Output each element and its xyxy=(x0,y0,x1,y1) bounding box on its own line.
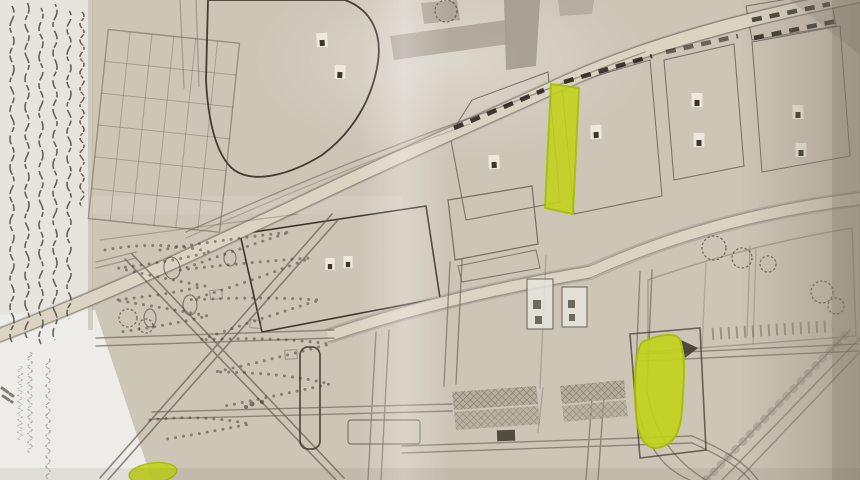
margin-edge-shadow xyxy=(88,0,93,330)
map-photo xyxy=(0,0,860,480)
highlight-strip-upper xyxy=(545,84,579,214)
highlight-block-right xyxy=(635,335,684,448)
fold-highlight xyxy=(356,0,452,480)
screenshot-root xyxy=(0,0,860,480)
